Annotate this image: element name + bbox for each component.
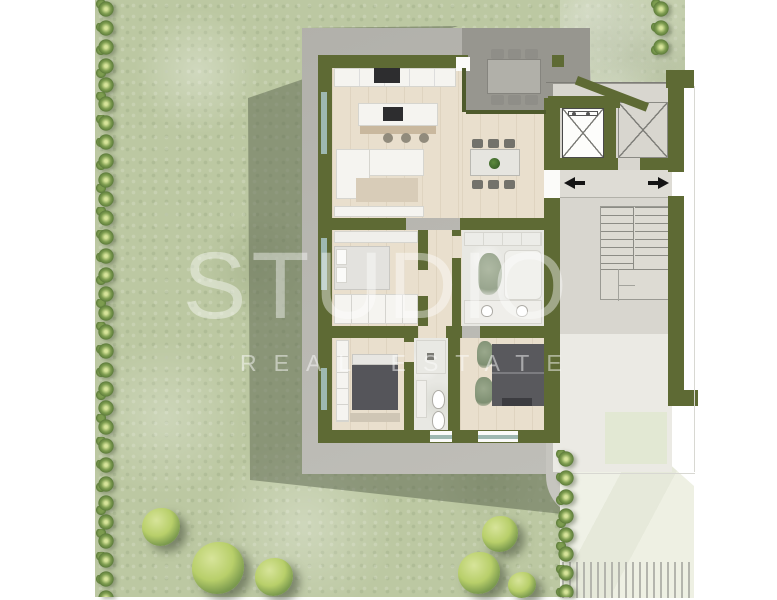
window-left [321, 92, 327, 154]
wall-living-bedrooms [332, 218, 406, 230]
terrace-chair [508, 95, 521, 105]
context-line-vertical [694, 86, 695, 472]
glass-wall-dining-top [466, 110, 546, 114]
bed-bench [502, 398, 532, 406]
dining-chair [472, 180, 483, 189]
bar-stool [401, 133, 411, 143]
site-plan-canvas: STUDIO REAL ESTATE [0, 0, 777, 600]
wall-top [318, 55, 468, 68]
context-line-horizontal [560, 473, 695, 474]
island-cooktop [383, 107, 403, 121]
living-rug [356, 178, 418, 202]
toilet [432, 390, 445, 409]
pale-green-pad [605, 412, 667, 464]
stair-flight-right [635, 207, 671, 263]
grate-strip [562, 562, 694, 598]
terrace-chair [525, 49, 538, 59]
hedge-top-right [650, 0, 673, 58]
terrace-post [552, 55, 564, 67]
watermark-subtitle: REAL ESTATE [240, 350, 579, 377]
door-arrow-left-icon [564, 177, 575, 189]
stair-landing-line [601, 269, 671, 270]
bedroom-rug [350, 413, 400, 422]
elevator-pulley-icon [572, 112, 576, 116]
entry-door-gap [544, 170, 560, 198]
bath-vanity-small [416, 380, 427, 418]
dining-chair [472, 139, 483, 148]
tv-sideboard [334, 206, 424, 217]
hedge-right-bottom [555, 450, 576, 597]
core-wall-right-upper [668, 84, 684, 172]
core-wall-right-lower [668, 196, 684, 394]
dining-chair [504, 139, 515, 148]
door-arrow-left-stem [575, 181, 585, 185]
terrace-chair [491, 95, 504, 105]
door-arrow-right-stem [648, 181, 658, 185]
dining-chair [488, 139, 499, 148]
glass-wall-dining-side [462, 68, 466, 112]
shaft-door-gap [618, 158, 640, 170]
bidet [432, 411, 445, 430]
window-bottom-glass [478, 435, 518, 439]
terrace-chair [525, 95, 538, 105]
window-bottom-glass [430, 435, 452, 439]
core-wall-shaft-divider [604, 102, 616, 158]
elevator-pulley-icon [586, 112, 590, 116]
staircase [600, 206, 670, 300]
elevator-cabin [562, 108, 604, 158]
table-plant [489, 158, 500, 169]
stair-flight-left [601, 207, 634, 269]
stair-landing-divider [618, 285, 635, 286]
bar-stool [383, 133, 393, 143]
dining-chair [504, 180, 515, 189]
wall-living-bedrooms [460, 218, 546, 230]
terrace-chair [508, 49, 521, 59]
bar-stool [419, 133, 429, 143]
door-arrow-right-icon [658, 177, 669, 189]
terrace-table [487, 59, 541, 94]
hedge-left [95, 0, 118, 597]
core-wall-shaft-bottom [548, 158, 672, 170]
terrace-chair [491, 49, 504, 59]
cooktop [374, 68, 400, 83]
dining-chair [488, 180, 499, 189]
watermark-brand: STUDIO [183, 232, 572, 341]
